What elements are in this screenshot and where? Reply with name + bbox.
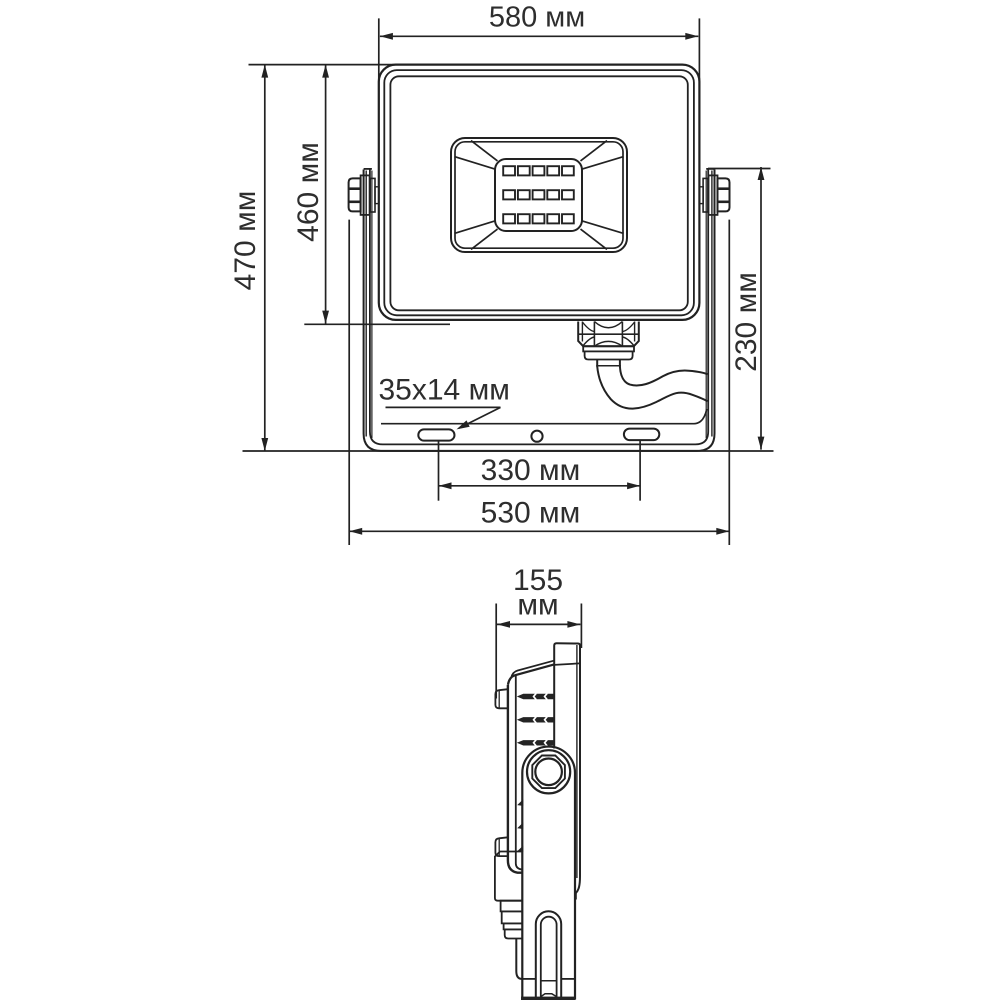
svg-text:530 мм: 530 мм xyxy=(481,496,581,529)
svg-text:330 мм: 330 мм xyxy=(481,454,581,487)
svg-text:мм: мм xyxy=(517,589,558,622)
svg-text:460 мм: 460 мм xyxy=(292,142,325,242)
svg-text:230 мм: 230 мм xyxy=(730,272,763,372)
svg-text:470 мм: 470 мм xyxy=(229,191,262,291)
svg-text:35x14 мм: 35x14 мм xyxy=(379,373,510,406)
svg-text:580 мм: 580 мм xyxy=(489,2,585,34)
